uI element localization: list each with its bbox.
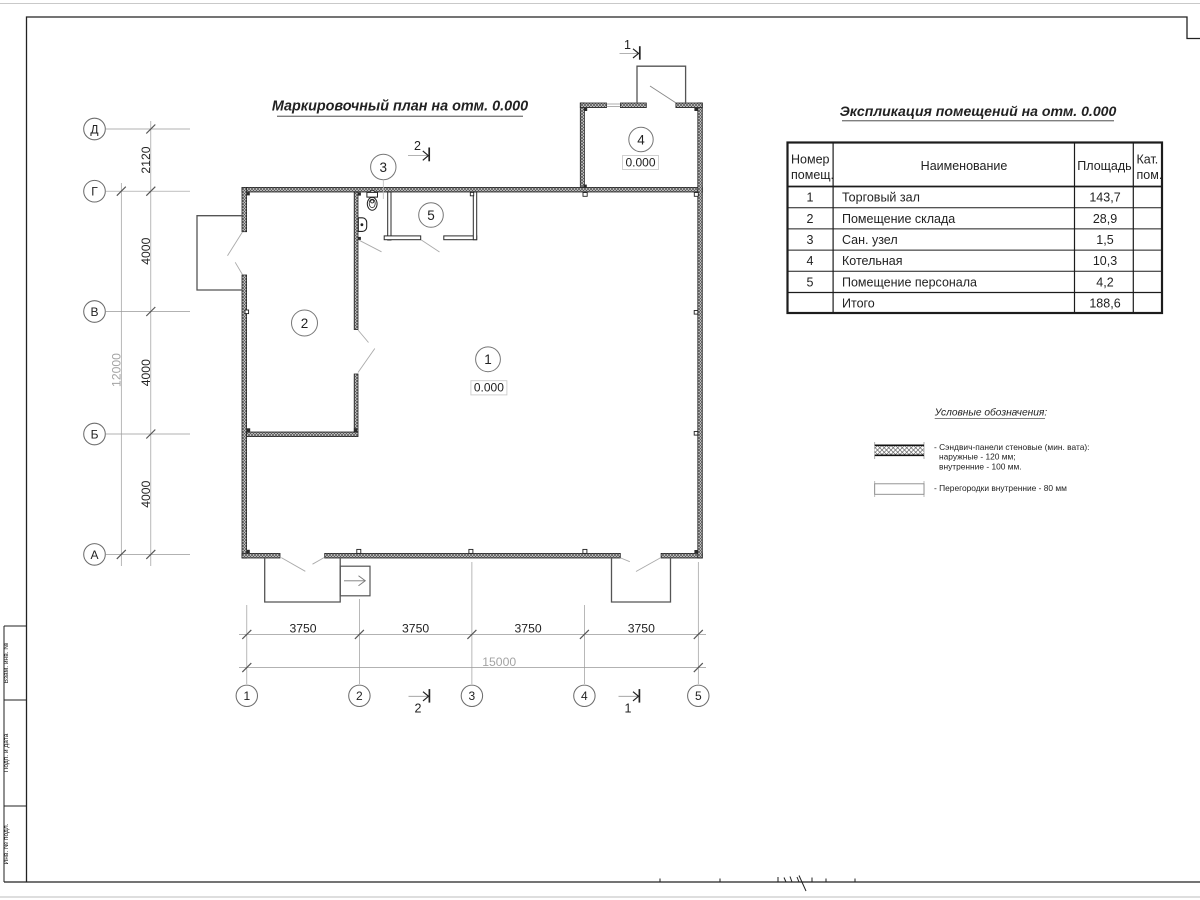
- svg-text:3750: 3750: [515, 621, 542, 635]
- svg-text:5: 5: [695, 689, 702, 703]
- svg-text:наружные - 120 мм;: наружные - 120 мм;: [939, 452, 1016, 462]
- svg-text:4000: 4000: [139, 480, 153, 507]
- svg-text:3750: 3750: [628, 621, 655, 635]
- svg-text:Экспликация помещений на отм.: Экспликация помещений на отм. 0.000: [840, 103, 1117, 119]
- svg-text:1: 1: [807, 191, 814, 205]
- svg-text:Подп. и дата: Подп. и дата: [3, 733, 10, 772]
- svg-text:4000: 4000: [139, 237, 153, 264]
- svg-text:внутренние - 100 мм.: внутренние - 100 мм.: [939, 461, 1022, 471]
- svg-text:3750: 3750: [402, 621, 429, 635]
- svg-text:1: 1: [484, 352, 492, 367]
- svg-text:0.000: 0.000: [474, 381, 504, 395]
- svg-text:Сан. узел: Сан. узел: [842, 233, 898, 247]
- svg-text:143,7: 143,7: [1089, 191, 1120, 205]
- svg-text:3: 3: [469, 689, 476, 703]
- svg-text:2: 2: [356, 689, 363, 703]
- svg-text:2120: 2120: [139, 146, 153, 173]
- svg-text:2: 2: [415, 702, 422, 716]
- svg-text:4: 4: [637, 132, 645, 147]
- svg-text:4000: 4000: [139, 359, 153, 386]
- svg-text:Наименование: Наименование: [921, 159, 1008, 173]
- svg-text:Взам. инв. №: Взам. инв. №: [3, 643, 10, 684]
- svg-text:5: 5: [427, 208, 435, 223]
- svg-text:0.000: 0.000: [625, 155, 655, 169]
- svg-text:Г: Г: [91, 185, 98, 199]
- svg-text:Помещение склада: Помещение склада: [842, 212, 955, 226]
- svg-text:А: А: [90, 548, 98, 562]
- svg-text:2: 2: [414, 139, 421, 153]
- svg-text:Б: Б: [91, 427, 99, 441]
- svg-text:4: 4: [807, 254, 814, 268]
- svg-text:15000: 15000: [482, 655, 516, 669]
- svg-text:Инв. № подл.: Инв. № подл.: [3, 823, 10, 864]
- svg-text:Итого: Итого: [842, 296, 875, 310]
- svg-text:28,9: 28,9: [1093, 212, 1117, 226]
- svg-text:Маркировочный план на отм. 0.0: Маркировочный план на отм. 0.000: [272, 99, 528, 115]
- svg-text:Номер: Номер: [791, 153, 830, 167]
- svg-text:1: 1: [243, 689, 250, 703]
- svg-text:3: 3: [807, 233, 814, 247]
- svg-text:3750: 3750: [289, 621, 316, 635]
- svg-text:Условные обозначения:: Условные обозначения:: [934, 407, 1048, 419]
- svg-text:помещ.: помещ.: [791, 168, 834, 182]
- svg-text:пом.: пом.: [1137, 168, 1163, 182]
- svg-text:Котельная: Котельная: [842, 254, 903, 268]
- svg-text:1: 1: [624, 38, 631, 52]
- svg-text:Д: Д: [90, 122, 98, 136]
- svg-text:- Сэндвич-панели стеновые (мин: - Сэндвич-панели стеновые (мин. вата):: [934, 442, 1090, 452]
- svg-text:10,3: 10,3: [1093, 254, 1117, 268]
- svg-text:2: 2: [807, 212, 814, 226]
- svg-text:- Перегородки внутренние - 80: - Перегородки внутренние - 80 мм: [934, 483, 1067, 493]
- svg-text:12000: 12000: [109, 353, 123, 387]
- svg-text:Кат.: Кат.: [1137, 153, 1159, 167]
- svg-text:4: 4: [581, 689, 588, 703]
- svg-text:Торговый зал: Торговый зал: [842, 191, 920, 205]
- svg-text:3: 3: [380, 160, 388, 175]
- svg-text:2: 2: [301, 316, 309, 331]
- svg-text:1: 1: [625, 702, 632, 716]
- svg-text:188,6: 188,6: [1089, 296, 1120, 310]
- svg-text:Площадь: Площадь: [1077, 159, 1131, 173]
- svg-text:1,5: 1,5: [1096, 233, 1113, 247]
- svg-text:4,2: 4,2: [1096, 275, 1113, 289]
- svg-text:Помещение персонала: Помещение персонала: [842, 275, 977, 289]
- svg-text:5: 5: [807, 275, 814, 289]
- svg-text:В: В: [90, 305, 98, 319]
